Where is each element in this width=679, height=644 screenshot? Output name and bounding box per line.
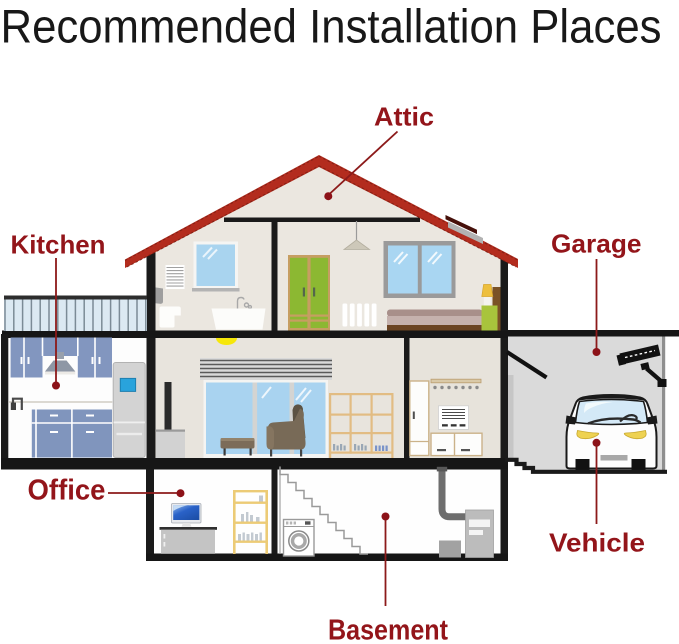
svg-text:Office: Office (28, 475, 106, 507)
svg-text:Recommended Installation Place: Recommended Installation Places (1, 0, 662, 53)
svg-text:Vehicle: Vehicle (549, 528, 645, 558)
svg-text:Basement: Basement (328, 615, 448, 644)
svg-text:Kitchen: Kitchen (11, 230, 106, 260)
svg-text:Garage: Garage (551, 229, 642, 259)
svg-text:Attic: Attic (374, 102, 434, 132)
